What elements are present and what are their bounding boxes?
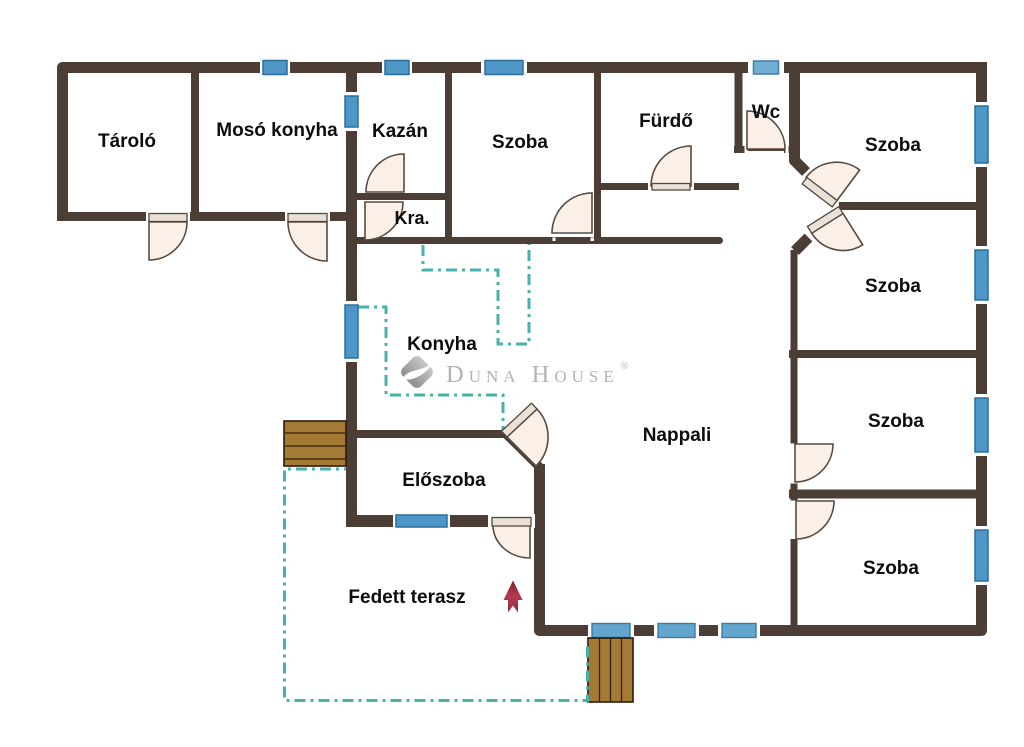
svg-text:Tároló: Tároló — [98, 131, 156, 152]
svg-text:®: ® — [621, 361, 629, 372]
svg-text:Kazán: Kazán — [372, 121, 428, 142]
svg-text:Előszoba: Előszoba — [402, 470, 486, 491]
svg-text:Mosó konyha: Mosó konyha — [216, 120, 338, 141]
svg-text:Kra.: Kra. — [394, 208, 429, 228]
svg-text:Szoba: Szoba — [865, 135, 921, 156]
svg-text:Wc: Wc — [752, 102, 781, 123]
svg-text:Szoba: Szoba — [863, 558, 919, 579]
svg-text:Szoba: Szoba — [865, 276, 921, 297]
svg-text:Duna House: Duna House — [446, 361, 619, 388]
svg-text:Szoba: Szoba — [868, 411, 924, 432]
svg-text:Fedett terasz: Fedett terasz — [348, 587, 465, 608]
svg-text:Fürdő: Fürdő — [639, 111, 693, 132]
svg-text:Nappali: Nappali — [643, 425, 712, 446]
svg-text:Szoba: Szoba — [492, 132, 548, 153]
svg-text:Konyha: Konyha — [407, 334, 477, 355]
